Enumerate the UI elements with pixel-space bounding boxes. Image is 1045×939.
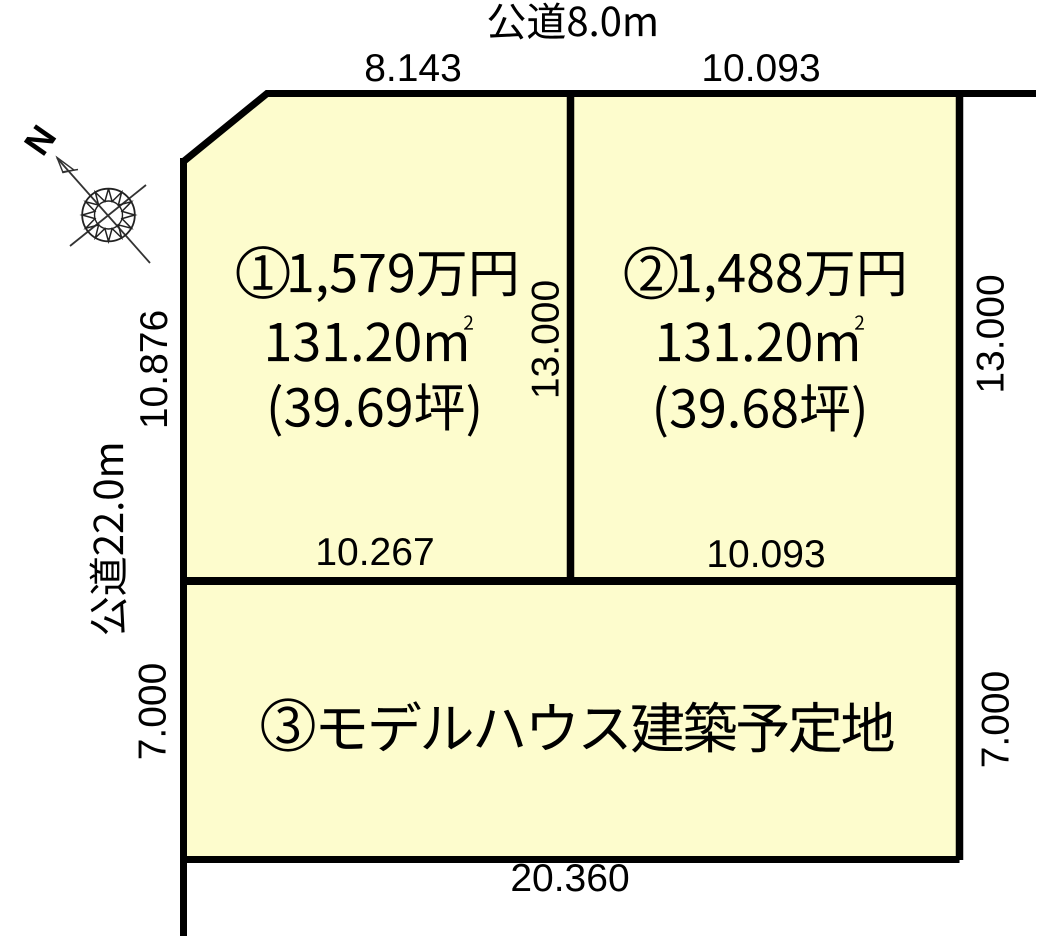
svg-text:7.000: 7.000 xyxy=(974,671,1017,769)
svg-text:10.876: 10.876 xyxy=(133,310,176,429)
svg-text:N: N xyxy=(16,118,64,163)
svg-text:13.000: 13.000 xyxy=(524,280,567,399)
svg-text:8.143: 8.143 xyxy=(364,47,462,90)
svg-text:7.000: 7.000 xyxy=(131,663,174,761)
svg-text:13.000: 13.000 xyxy=(969,274,1012,393)
svg-text:20.360: 20.360 xyxy=(510,857,629,900)
svg-text:10.093: 10.093 xyxy=(706,533,825,576)
svg-text:10.267: 10.267 xyxy=(315,531,434,574)
svg-text:10.093: 10.093 xyxy=(701,47,820,90)
